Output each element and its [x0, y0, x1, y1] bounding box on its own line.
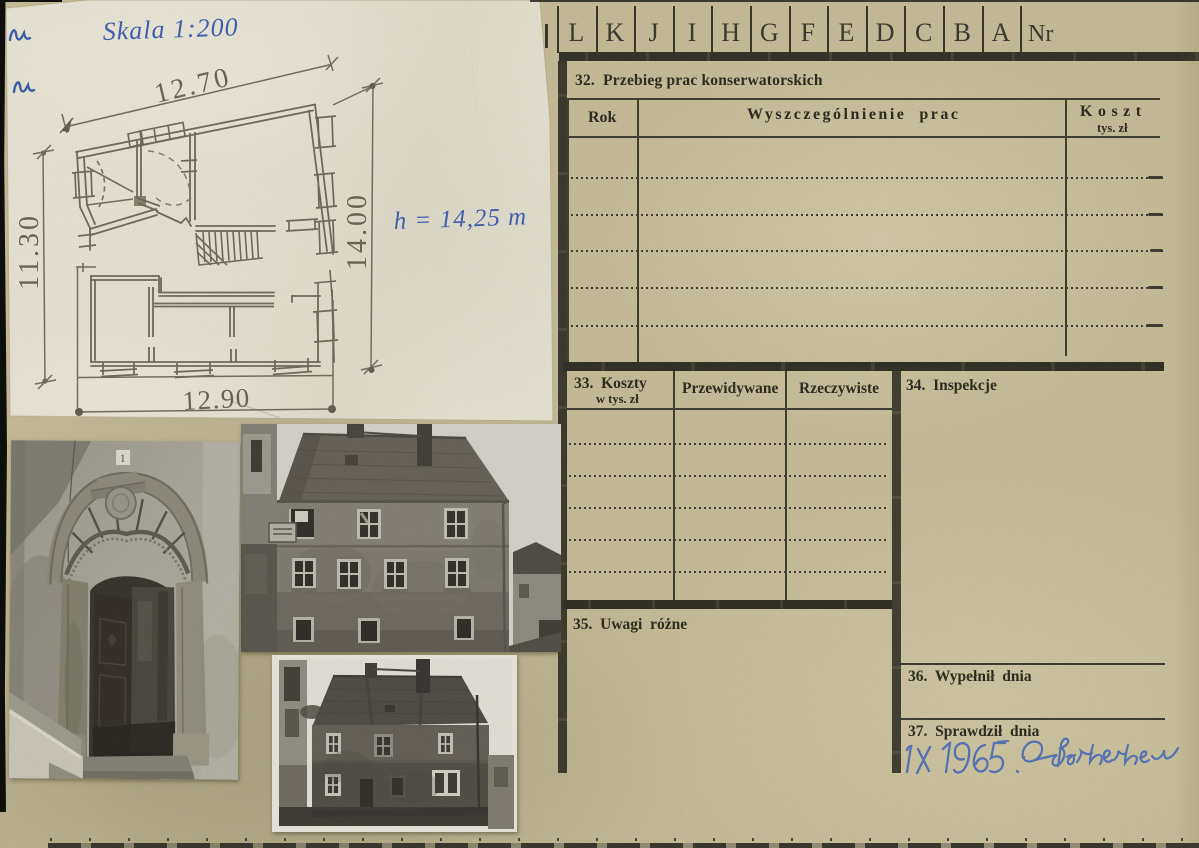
svg-text:Skala 1:200: Skala 1:200 [102, 12, 239, 46]
svg-text:1: 1 [120, 453, 126, 465]
svg-text:14.00: 14.00 [342, 192, 373, 270]
svg-text:11.30: 11.30 [14, 213, 45, 290]
svg-text:12.90: 12.90 [182, 382, 252, 416]
svg-text:h = 14,25 m: h = 14,25 m [393, 203, 527, 235]
